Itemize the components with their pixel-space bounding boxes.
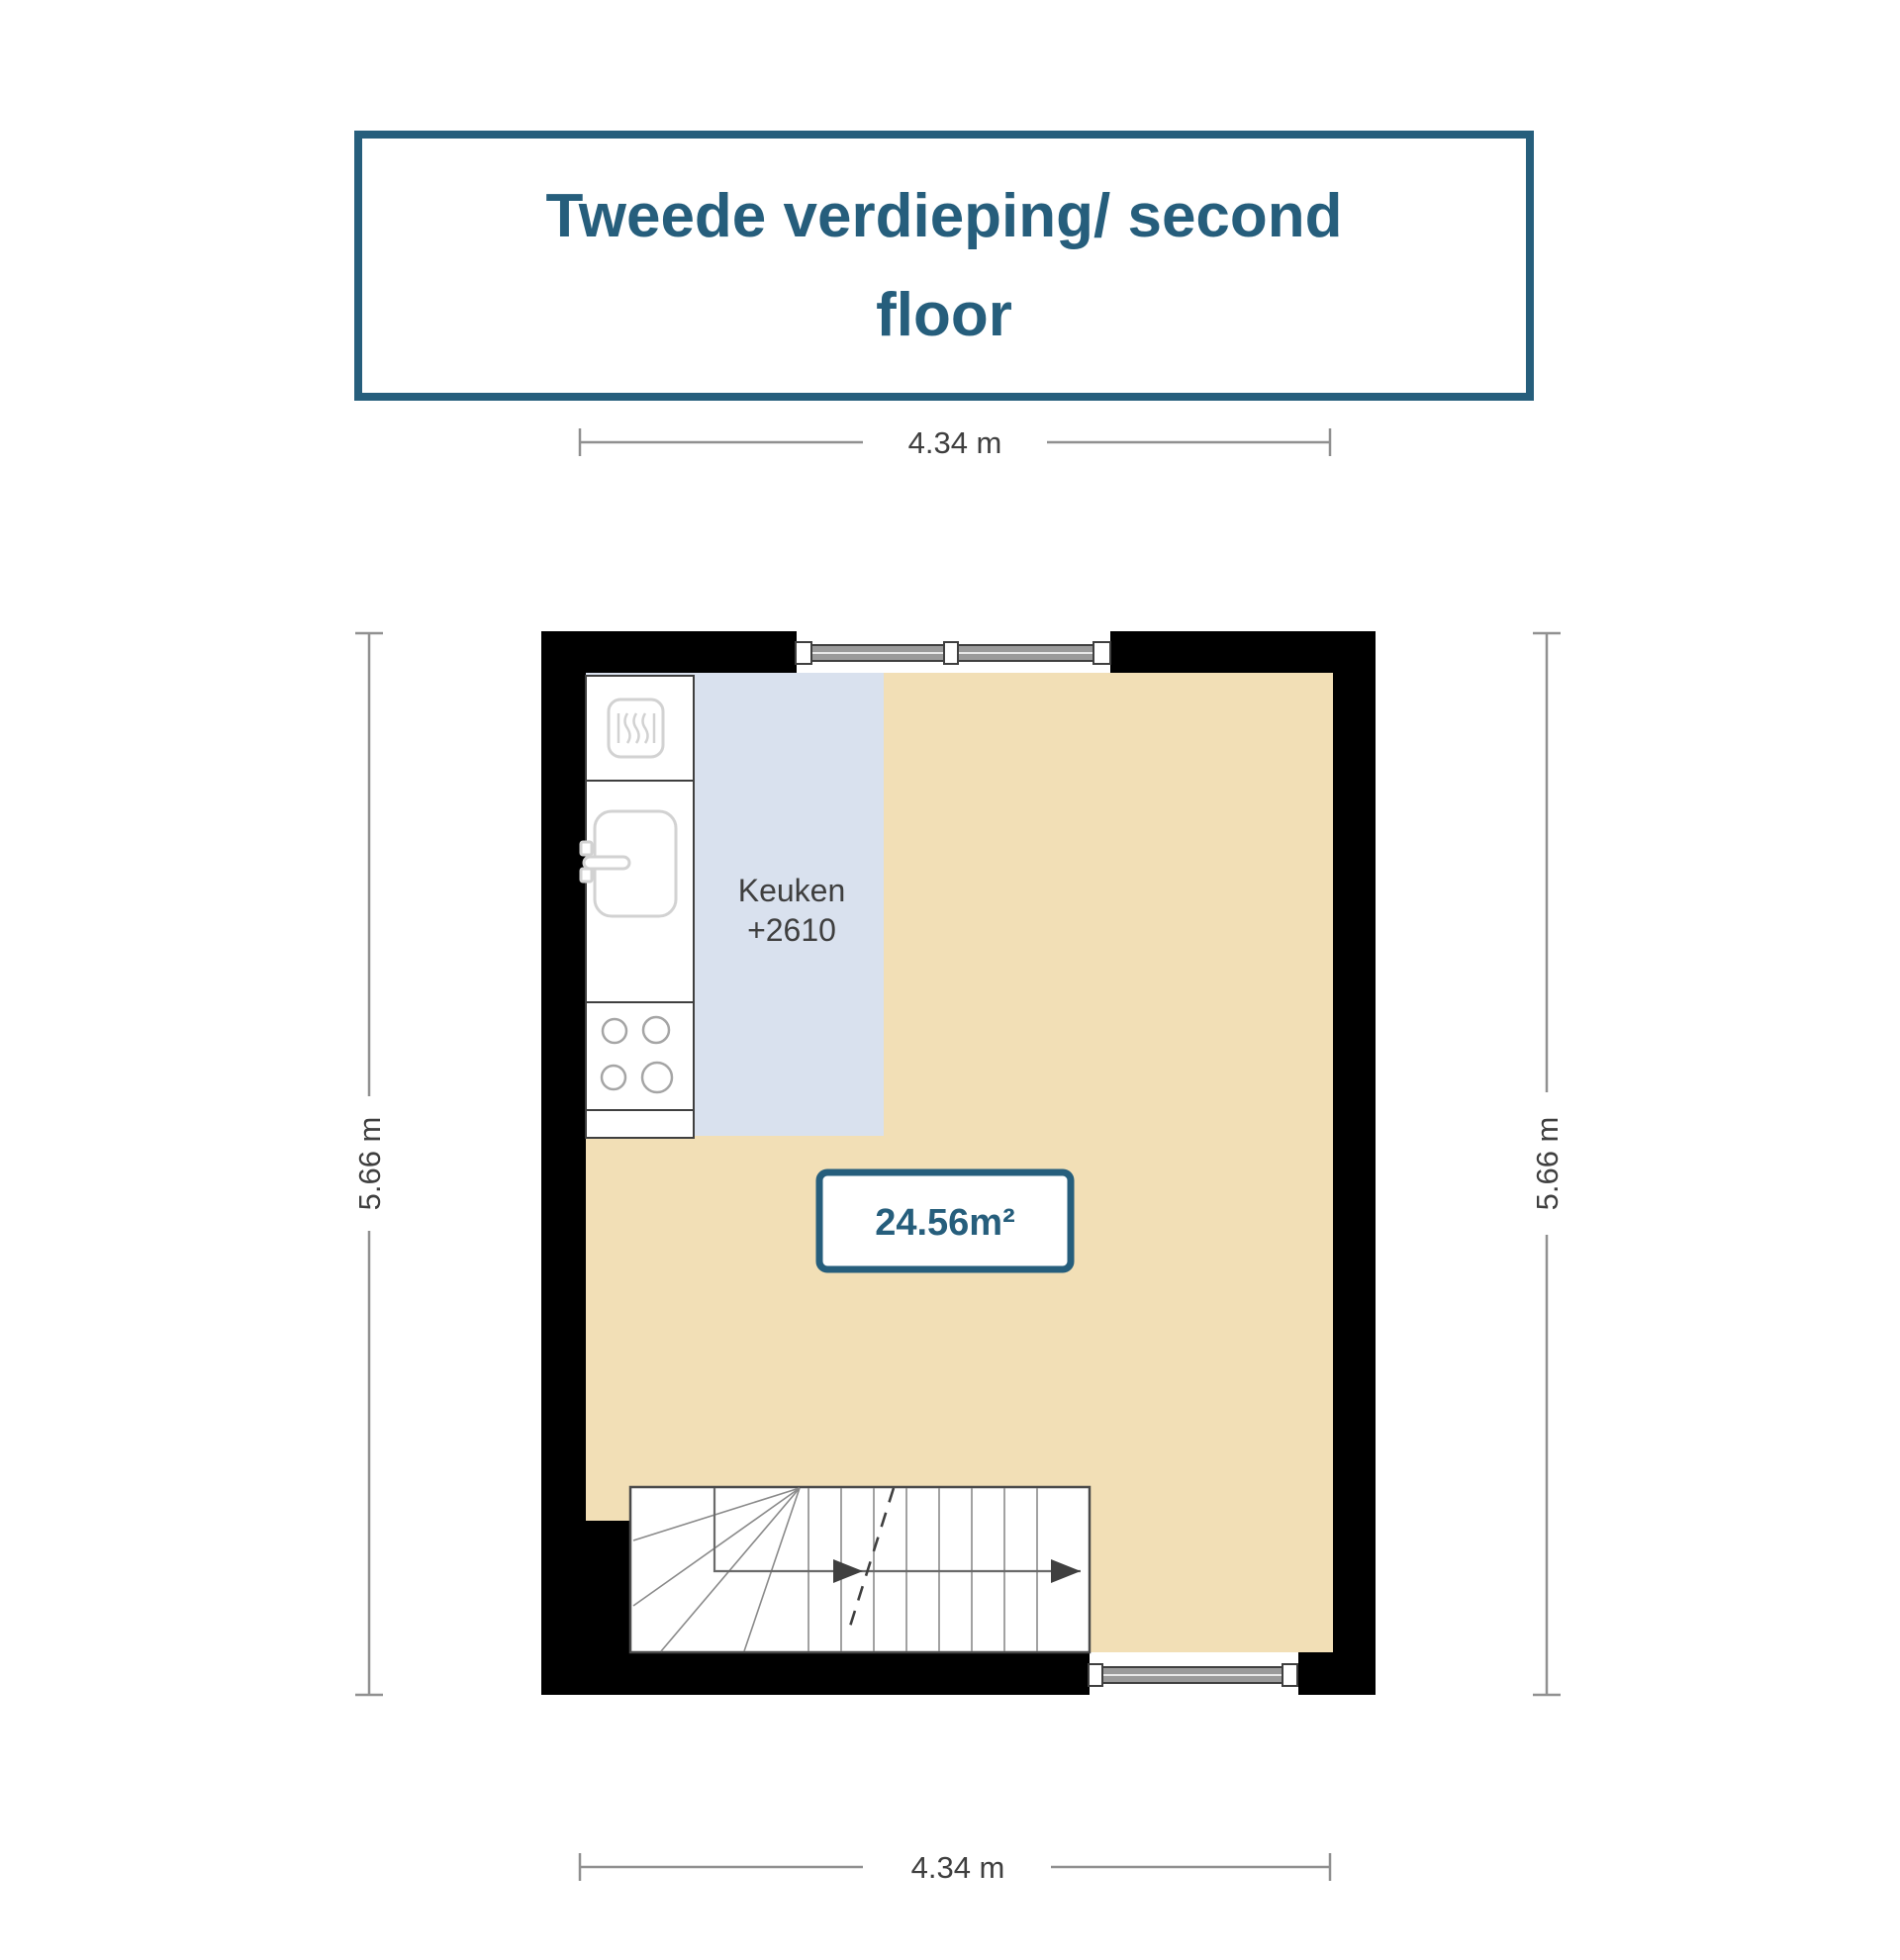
room-name-label: Keuken <box>738 873 846 908</box>
area-badge: 24.56m² <box>819 1172 1071 1269</box>
floor-plan-svg: 4.34 m 4.34 m 5.66 m 5.66 m <box>0 0 1900 1960</box>
dimension-bottom: 4.34 m <box>580 1850 1330 1885</box>
dimension-top: 4.34 m <box>580 425 1330 460</box>
dimension-right: 5.66 m <box>1530 633 1565 1695</box>
area-value-label: 24.56m² <box>875 1202 1015 1244</box>
dimension-right-label: 5.66 m <box>1530 1117 1565 1211</box>
room-level-label: +2610 <box>747 912 836 948</box>
wall-right <box>1333 631 1376 1695</box>
wall-bottom-right <box>1298 1652 1376 1695</box>
stairs-symbol <box>630 1487 1090 1652</box>
window-top <box>796 631 1110 673</box>
dimension-bottom-label: 4.34 m <box>911 1850 1005 1885</box>
wall-left <box>541 631 586 1695</box>
dimension-left-label: 5.66 m <box>352 1117 387 1211</box>
dimension-top-label: 4.34 m <box>908 425 1002 460</box>
sink-icon <box>581 811 676 916</box>
dimension-left: 5.66 m <box>352 633 387 1695</box>
kitchen-counter <box>581 676 694 1138</box>
oven-icon <box>609 700 663 757</box>
wall-bottom-left <box>541 1652 1090 1695</box>
window-bottom <box>1089 1652 1298 1695</box>
